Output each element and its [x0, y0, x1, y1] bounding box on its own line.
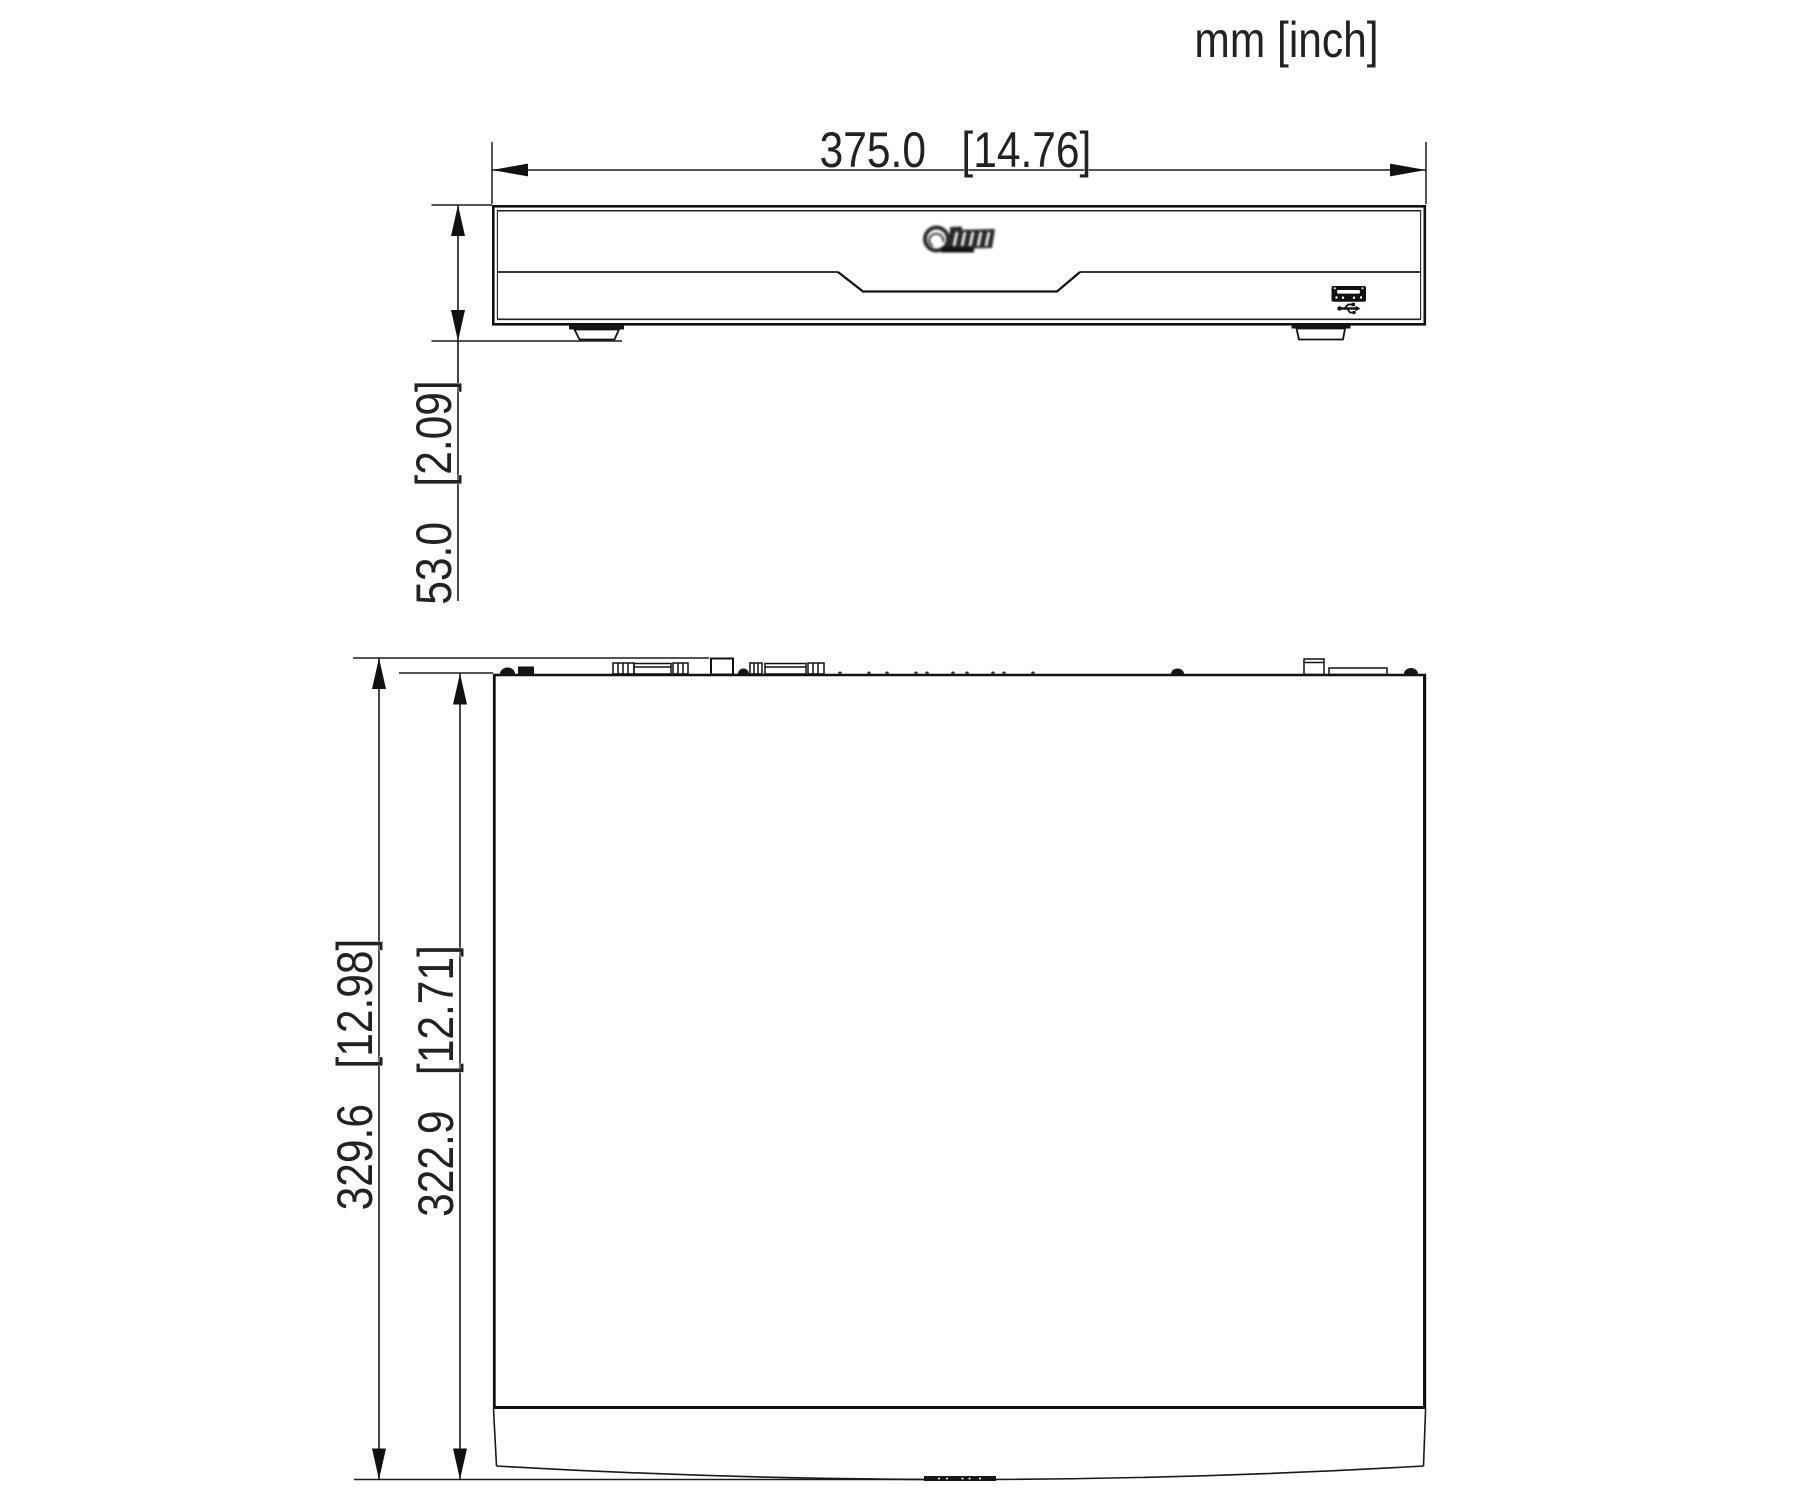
svg-text:375.0 [14.76]: 375.0 [14.76]	[820, 122, 1092, 178]
svg-text:322.9 [12.71]: 322.9 [12.71]	[408, 945, 464, 1217]
svg-text:53.0 [2.09]: 53.0 [2.09]	[406, 380, 462, 604]
svg-text:329.6 [12.98]: 329.6 [12.98]	[327, 939, 383, 1211]
svg-text:mm [inch]: mm [inch]	[1194, 12, 1378, 68]
